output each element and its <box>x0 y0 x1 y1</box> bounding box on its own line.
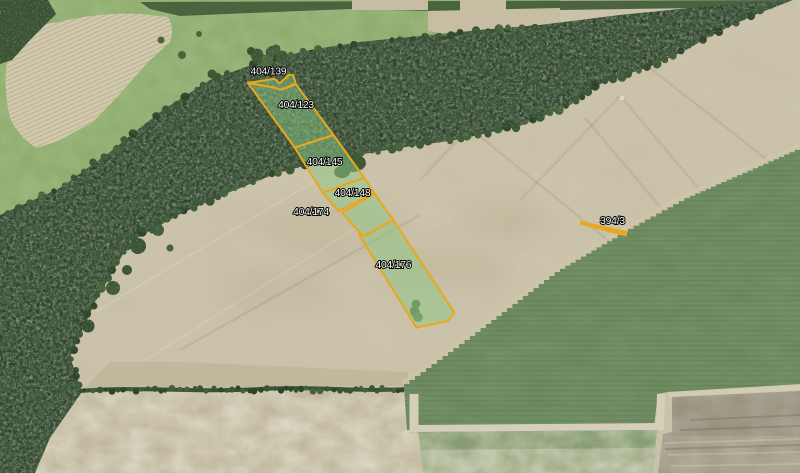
svg-text:404/139: 404/139 <box>251 66 287 77</box>
svg-text:404/148: 404/148 <box>335 188 371 199</box>
svg-text:404/174: 404/174 <box>293 207 329 218</box>
svg-text:404/145: 404/145 <box>307 157 343 168</box>
svg-text:404/123: 404/123 <box>278 100 314 111</box>
svg-text:404/176: 404/176 <box>375 260 411 271</box>
svg-text:394/3: 394/3 <box>600 216 625 227</box>
